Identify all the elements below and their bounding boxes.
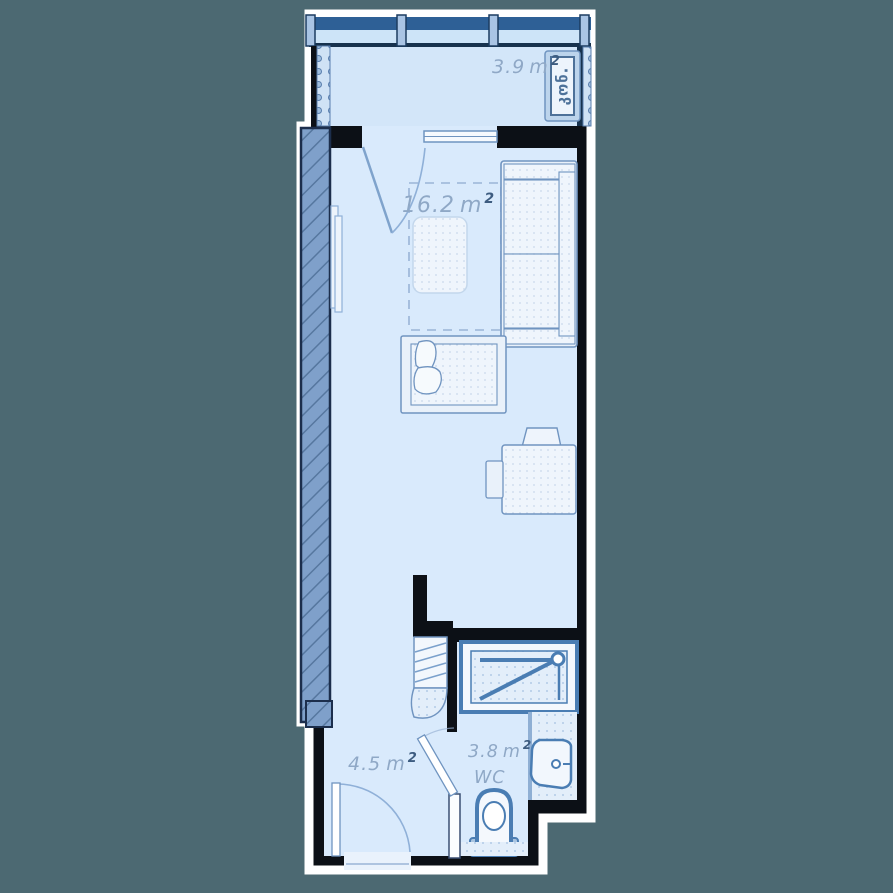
water-heater [411, 637, 447, 718]
sofa-cushion [504, 180, 559, 254]
window-to-balcony [424, 131, 497, 142]
bed [401, 336, 506, 413]
sink-faucet [552, 760, 560, 768]
balcony-left-wall-line [311, 46, 317, 128]
sofa-cushion [504, 254, 559, 328]
balcony-door-opening [362, 126, 424, 148]
interior-wall [447, 628, 577, 642]
balcony-window-band [306, 15, 591, 47]
pillow [415, 341, 436, 369]
balcony-railing-left [317, 46, 330, 126]
desk-chair [522, 428, 561, 447]
shower [461, 642, 577, 712]
sofa [501, 161, 577, 347]
window-frame-bottom [309, 43, 591, 47]
wall-panel [335, 216, 342, 312]
structural-wall-endcap [306, 701, 332, 727]
living-area-label: 16.2m2 [402, 191, 495, 218]
pillow [414, 367, 441, 394]
entrance-opening [344, 852, 411, 870]
window-mullion [306, 15, 315, 46]
window-mullion [397, 15, 406, 46]
sofa-backrest [559, 172, 575, 336]
window-mullion [489, 15, 498, 46]
floor-plan-svg: კონ. 3.9m2 16.2m2 [0, 0, 893, 893]
wc-door-jamb [449, 794, 460, 858]
sink [531, 740, 571, 788]
desk [502, 445, 576, 514]
shower-head [552, 653, 564, 665]
window-frame-top [309, 17, 591, 30]
window-glass [309, 30, 591, 43]
wc-name-label: WC [474, 768, 506, 788]
structural-wall [301, 128, 330, 722]
floor-plan-stage: კონ. 3.9m2 16.2m2 [0, 0, 893, 893]
toilet-bowl [483, 802, 505, 830]
entrance-door-leaf [332, 783, 340, 856]
window-mullion [580, 15, 589, 46]
balcony-railing-right [583, 47, 591, 126]
wc-floor-strip [459, 842, 528, 856]
ac-unit-label: კონ. [554, 67, 572, 106]
interior-wall [447, 628, 457, 732]
table [413, 217, 467, 293]
side-chair [486, 461, 503, 498]
